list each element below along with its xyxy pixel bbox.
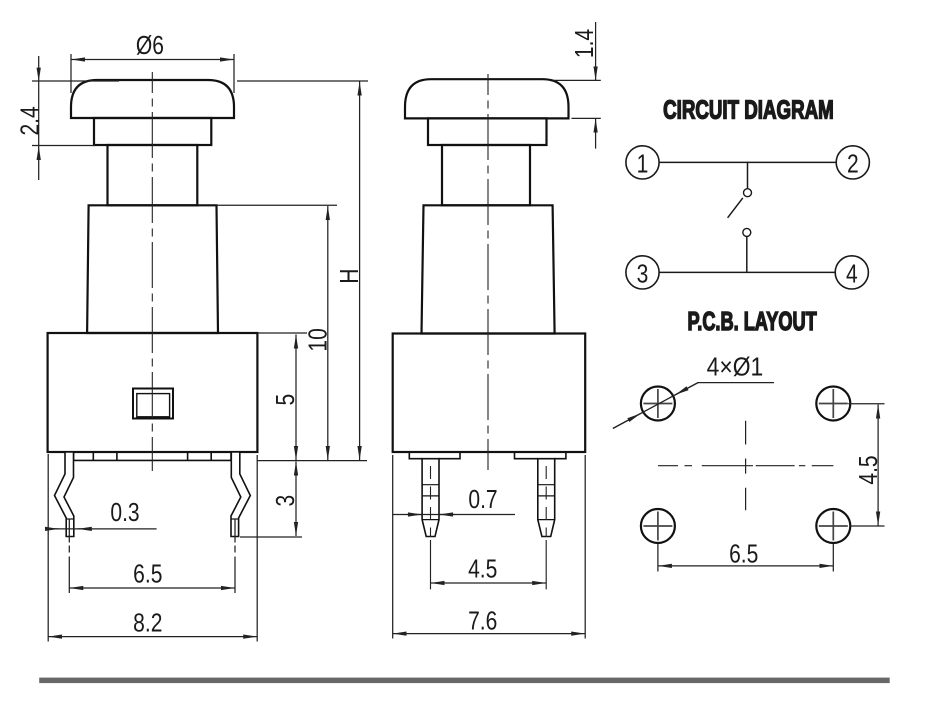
svg-text:4.5: 4.5: [855, 455, 884, 484]
svg-text:3: 3: [272, 495, 301, 507]
svg-text:Ø6: Ø6: [136, 32, 164, 61]
svg-text:6.5: 6.5: [133, 560, 162, 589]
svg-text:4×Ø1: 4×Ø1: [707, 353, 764, 382]
svg-text:0.3: 0.3: [110, 499, 139, 528]
svg-text:8.2: 8.2: [133, 609, 162, 638]
svg-text:2: 2: [847, 151, 859, 180]
svg-text:4.5: 4.5: [468, 555, 497, 584]
svg-text:CIRCUIT DIAGRAM: CIRCUIT DIAGRAM: [663, 96, 834, 124]
svg-text:3: 3: [637, 260, 649, 289]
svg-text:10: 10: [305, 328, 334, 351]
svg-text:P.C.B. LAYOUT: P.C.B. LAYOUT: [687, 307, 817, 336]
svg-text:1: 1: [637, 151, 649, 180]
svg-text:5: 5: [272, 394, 301, 406]
svg-text:1.4: 1.4: [571, 29, 600, 58]
svg-text:7.6: 7.6: [468, 607, 497, 636]
svg-text:6.5: 6.5: [729, 540, 758, 569]
svg-text:4: 4: [846, 260, 858, 289]
svg-text:H: H: [336, 268, 365, 283]
svg-text:0.7: 0.7: [468, 486, 497, 515]
svg-text:2.4: 2.4: [16, 106, 45, 135]
